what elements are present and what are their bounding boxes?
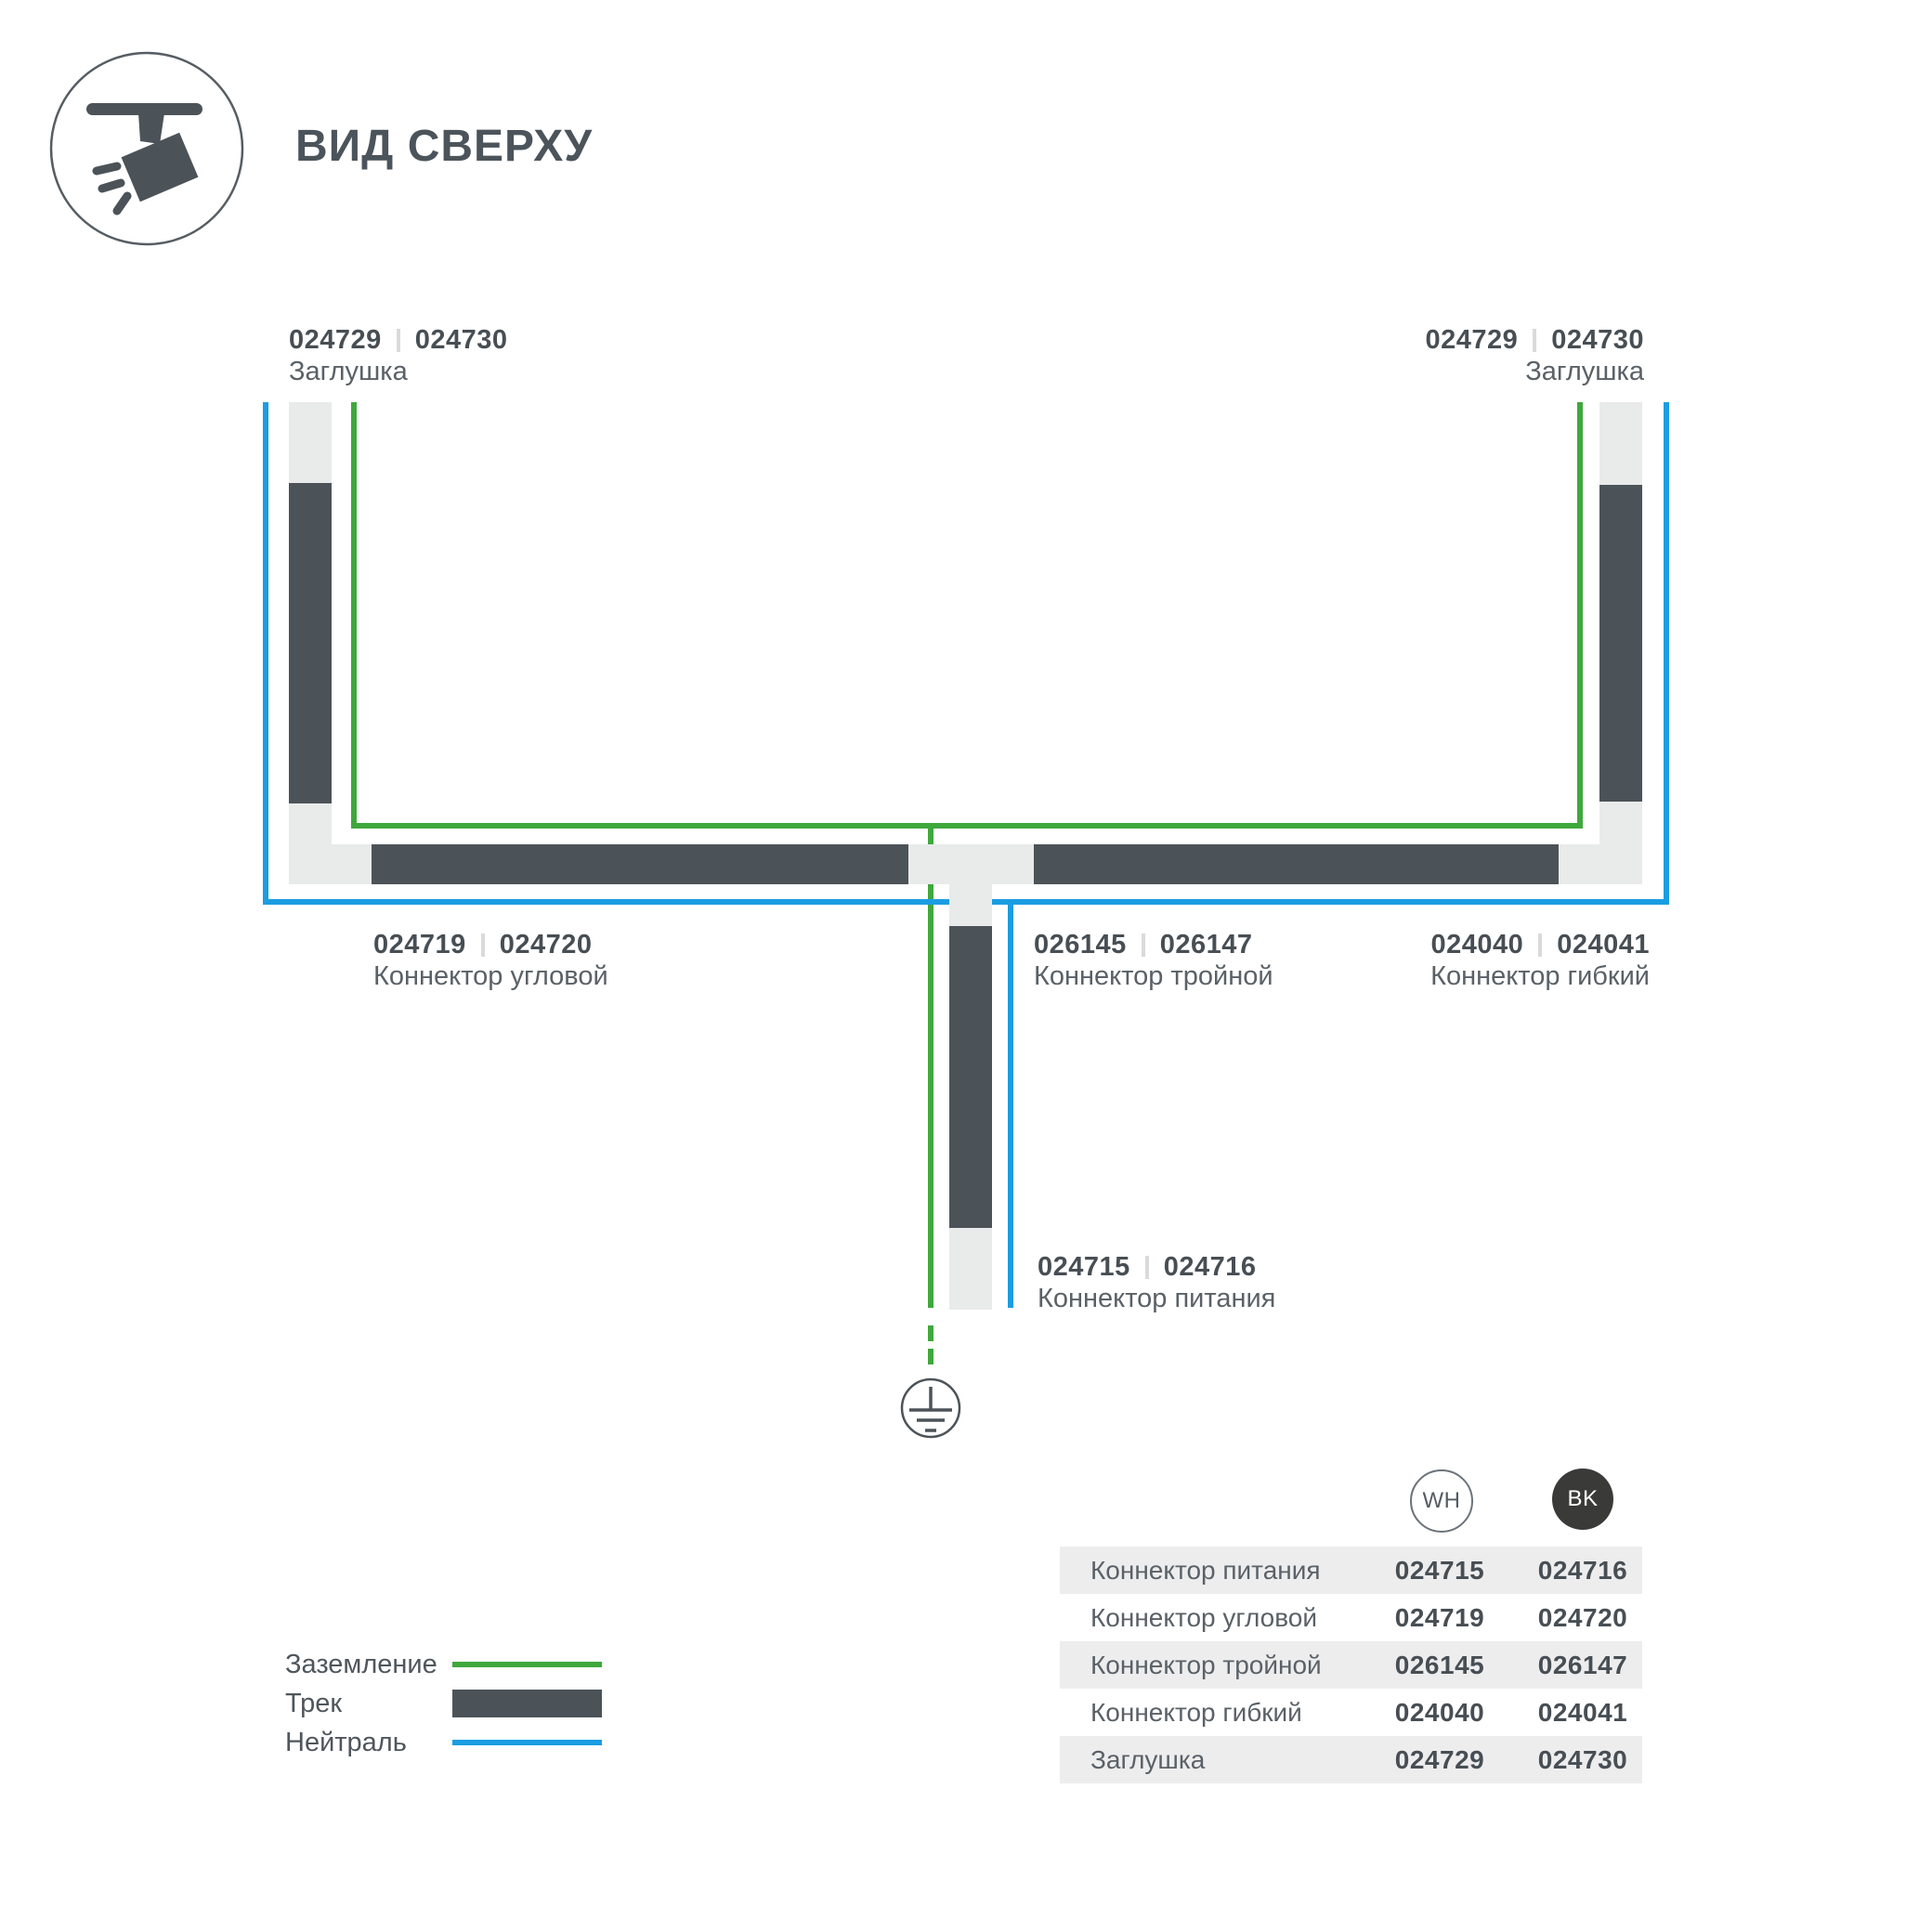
row-name: Заглушка — [1060, 1745, 1356, 1775]
part-number-wh: 024719 — [373, 929, 466, 960]
earth-ground-icon — [902, 1379, 959, 1437]
legend-swatch-neutral — [452, 1740, 602, 1745]
legend-label-ground: Заземление — [285, 1649, 437, 1680]
part-name: Заглушка — [289, 356, 508, 387]
label-triple-connector: 026145 026147 Коннектор тройной — [1034, 929, 1273, 992]
legend-swatch-track — [452, 1690, 602, 1717]
label-endcap-right: 024729 024730 Заглушка — [1425, 324, 1644, 387]
separator — [1533, 329, 1536, 352]
color-badge-white: WH — [1410, 1469, 1473, 1533]
legend-label-track: Трек — [285, 1688, 342, 1719]
separator — [397, 329, 400, 352]
label-corner-connector: 024719 024720 Коннектор угловой — [373, 929, 608, 992]
part-numbers: 026145 026147 — [1034, 929, 1273, 960]
row-bk-code: 024720 — [1523, 1603, 1642, 1633]
part-numbers: 024729 024730 — [289, 324, 508, 356]
triple-connector-stub — [949, 884, 992, 926]
part-numbers: 024719 024720 — [373, 929, 608, 960]
row-name: Коннектор угловой — [1060, 1603, 1356, 1633]
color-badge-black: BK — [1552, 1469, 1613, 1530]
power-connector-end — [949, 1228, 992, 1310]
part-name: Коннектор питания — [1038, 1283, 1275, 1314]
separator — [1538, 933, 1542, 957]
row-wh-code: 024040 — [1356, 1698, 1523, 1728]
label-power-connector: 024715 024716 Коннектор питания — [1038, 1251, 1275, 1314]
track-right-vertical — [1599, 485, 1642, 802]
page: ВИД СВЕРХУ — [0, 0, 1932, 1932]
ground-wire — [354, 402, 1580, 826]
triple-connector — [908, 844, 1034, 884]
row-bk-code: 024730 — [1523, 1745, 1642, 1775]
parts-table: Коннектор питания 024715 024716 Коннекто… — [1060, 1547, 1642, 1783]
part-number-bk: 024716 — [1164, 1251, 1257, 1283]
row-name: Коннектор питания — [1060, 1556, 1356, 1586]
separator — [1142, 933, 1145, 957]
table-row: Коннектор гибкий 024040 024041 — [1060, 1689, 1642, 1736]
part-numbers: 024715 024716 — [1038, 1251, 1275, 1283]
part-number-bk: 026147 — [1160, 929, 1253, 960]
part-name: Заглушка — [1425, 356, 1644, 387]
track-horizontal-left — [372, 844, 908, 884]
track-middle-vertical — [949, 926, 992, 1228]
separator — [1145, 1256, 1149, 1279]
part-number-wh: 024040 — [1430, 929, 1523, 960]
part-number-wh: 024715 — [1038, 1251, 1130, 1283]
part-numbers: 024040 024041 — [1430, 929, 1650, 960]
row-wh-code: 024719 — [1356, 1603, 1523, 1633]
part-number-wh: 026145 — [1034, 929, 1127, 960]
part-number-bk: 024730 — [415, 324, 508, 356]
row-wh-code: 026145 — [1356, 1651, 1523, 1680]
separator — [481, 933, 485, 957]
label-endcap-left: 024729 024730 Заглушка — [289, 324, 508, 387]
part-number-bk: 024730 — [1551, 324, 1644, 356]
legend-label-neutral: Нейтраль — [285, 1727, 407, 1758]
part-numbers: 024729 024730 — [1425, 324, 1644, 356]
part-number-bk: 024041 — [1557, 929, 1650, 960]
legend-swatch-ground — [452, 1662, 602, 1667]
table-row: Заглушка 024729 024730 — [1060, 1736, 1642, 1783]
table-row: Коннектор угловой 024719 024720 — [1060, 1594, 1642, 1641]
part-name: Коннектор гибкий — [1430, 960, 1650, 992]
table-row: Коннектор тройной 026145 026147 — [1060, 1641, 1642, 1689]
part-number-bk: 024720 — [500, 929, 593, 960]
row-wh-code: 024715 — [1356, 1556, 1523, 1586]
row-bk-code: 024716 — [1523, 1556, 1642, 1586]
corner-connector-left — [289, 844, 372, 884]
row-name: Коннектор гибкий — [1060, 1698, 1356, 1728]
part-number-wh: 024729 — [289, 324, 382, 356]
row-name: Коннектор тройной — [1060, 1651, 1356, 1680]
row-bk-code: 026147 — [1523, 1651, 1642, 1680]
track-horizontal-right — [1034, 844, 1559, 884]
row-wh-code: 024729 — [1356, 1745, 1523, 1775]
part-name: Коннектор угловой — [373, 960, 608, 992]
row-bk-code: 024041 — [1523, 1698, 1642, 1728]
table-row: Коннектор питания 024715 024716 — [1060, 1547, 1642, 1594]
label-flexible-connector: 024040 024041 Коннектор гибкий — [1430, 929, 1650, 992]
track-left-vertical — [289, 483, 332, 803]
part-number-wh: 024729 — [1425, 324, 1518, 356]
part-name: Коннектор тройной — [1034, 960, 1273, 992]
